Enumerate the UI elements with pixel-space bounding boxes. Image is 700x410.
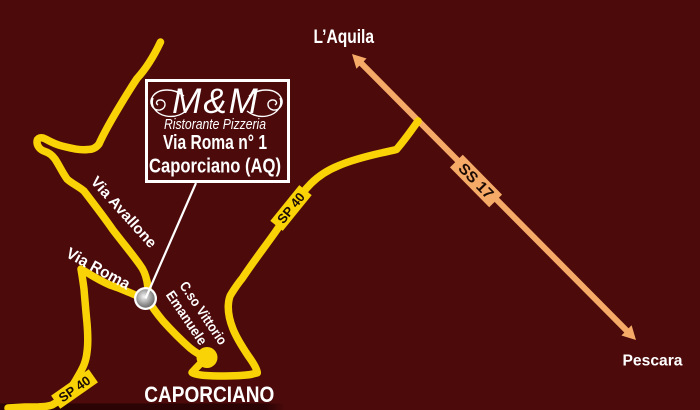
svg-text:Via Roma n° 1: Via Roma n° 1 — [163, 132, 267, 154]
svg-text:Pescara: Pescara — [623, 353, 683, 370]
svg-text:Caporciano (AQ): Caporciano (AQ) — [149, 156, 281, 178]
svg-text:CAPORCIANO: CAPORCIANO — [144, 382, 274, 407]
svg-text:L’Aquila: L’Aquila — [314, 27, 375, 48]
svg-text:Ristorante Pizzeria: Ristorante Pizzeria — [164, 116, 266, 133]
